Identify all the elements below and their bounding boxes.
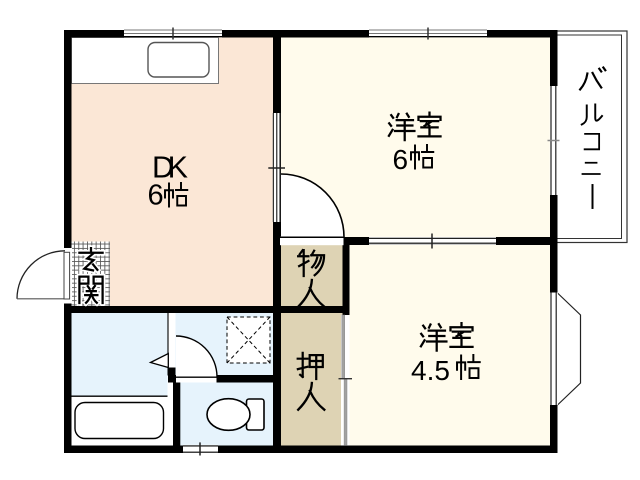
svg-text:6: 6	[148, 180, 164, 212]
svg-text:6: 6	[393, 144, 409, 175]
svg-text:4.5: 4.5	[411, 355, 450, 386]
